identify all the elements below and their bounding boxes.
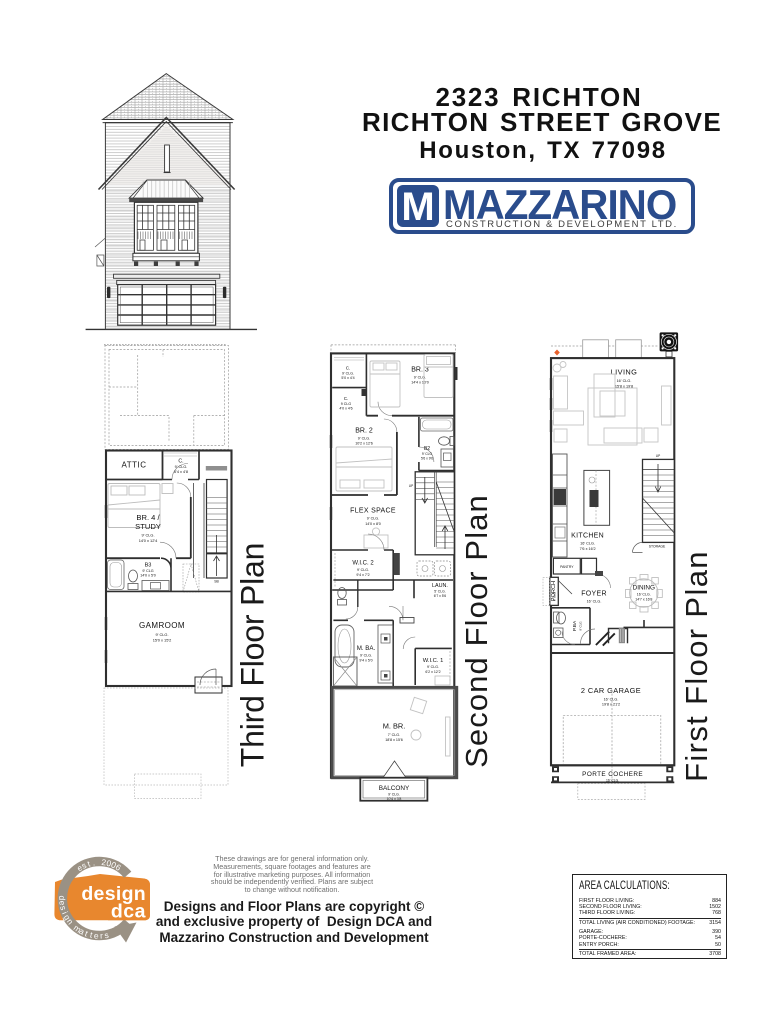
svg-text:5'0 x 4'4: 5'0 x 4'4 — [341, 376, 354, 380]
svg-text:9' CLG.: 9' CLG. — [360, 654, 372, 658]
svg-text:W.I.C. 1: W.I.C. 1 — [423, 658, 444, 664]
svg-text:KITCHEN: KITCHEN — [571, 533, 604, 540]
svg-text:5' CLG.: 5' CLG. — [434, 589, 445, 593]
svg-text:BALCONY: BALCONY — [379, 785, 410, 792]
svg-text:9' CLG.: 9' CLG. — [367, 517, 379, 521]
svg-text:DINING: DINING — [633, 585, 655, 592]
svg-text:14'0 x 12'4: 14'0 x 12'4 — [139, 538, 158, 543]
svg-text:9' CLG.: 9' CLG. — [141, 533, 154, 538]
svg-text:18'8 x 15'6: 18'8 x 15'6 — [385, 738, 403, 742]
svg-text:10'2 x 12'6: 10'2 x 12'6 — [355, 442, 373, 446]
svg-text:LAUN.: LAUN. — [432, 583, 448, 589]
svg-text:B3: B3 — [145, 563, 152, 569]
svg-text:C.: C. — [178, 459, 183, 465]
svg-text:7' CLG.: 7' CLG. — [388, 733, 400, 737]
svg-text:C.: C. — [344, 396, 349, 401]
svg-text:ATTIC: ATTIC — [121, 461, 146, 470]
svg-text:9'4 x 7'2: 9'4 x 7'2 — [356, 573, 369, 577]
svg-text:15'0 x 15'2: 15'0 x 15'2 — [153, 638, 172, 643]
svg-text:14'7 x 16'8: 14'7 x 16'8 — [635, 597, 652, 601]
svg-text:BR. 4 /: BR. 4 / — [136, 513, 160, 522]
svg-text:FOYER: FOYER — [581, 591, 607, 598]
svg-text:9' CLG.: 9' CLG. — [427, 665, 439, 669]
svg-text:C.: C. — [346, 366, 351, 371]
svg-text:6'4 x 4'8: 6'4 x 4'8 — [174, 470, 188, 474]
svg-text:16' CLG.: 16' CLG. — [604, 697, 619, 701]
svg-text:STORAGE: STORAGE — [649, 545, 666, 549]
svg-text:UP: UP — [409, 484, 413, 488]
svg-text:7'6 x 16'2: 7'6 x 16'2 — [580, 547, 596, 551]
svg-text:9' CLG: 9' CLG — [553, 591, 557, 601]
svg-text:6'7 x 5'6: 6'7 x 5'6 — [434, 594, 447, 598]
svg-text:9'4 x 5'0: 9'4 x 5'0 — [359, 659, 372, 663]
svg-text:19'8 x 21'2: 19'8 x 21'2 — [602, 703, 620, 707]
svg-text:16' CLG.: 16' CLG. — [580, 542, 595, 546]
svg-text:9' CLG: 9' CLG — [579, 621, 583, 631]
svg-text:16' CLG.: 16' CLG. — [606, 779, 619, 783]
svg-text:GAMROOM: GAMROOM — [139, 621, 185, 630]
svg-text:14'0 x 5'0: 14'0 x 5'0 — [140, 574, 156, 578]
svg-text:14'0 x 8'0: 14'0 x 8'0 — [365, 522, 381, 526]
svg-text:PORTE COCHERE: PORTE COCHERE — [582, 771, 643, 778]
svg-text:16' CLG.: 16' CLG. — [587, 600, 602, 604]
svg-text:W.I.C. 2: W.I.C. 2 — [352, 561, 374, 567]
svg-text:4'0 x 4'6: 4'0 x 4'6 — [339, 407, 352, 411]
svg-text:9' CLG.: 9' CLG. — [388, 793, 400, 797]
svg-text:FLEX SPACE: FLEX SPACE — [350, 508, 396, 515]
svg-text:M. BR.: M. BR. — [383, 722, 406, 731]
svg-text:SB: SB — [214, 580, 219, 584]
svg-text:BR. 3: BR. 3 — [411, 367, 429, 374]
svg-text:16' CLG.: 16' CLG. — [617, 379, 632, 383]
svg-text:9' CLG: 9' CLG — [142, 569, 153, 573]
svg-text:9' CLG.: 9' CLG. — [357, 568, 369, 572]
svg-text:STUDY: STUDY — [135, 522, 161, 531]
svg-text:10'4 x 3'8: 10'4 x 3'8 — [387, 797, 402, 801]
svg-text:P.BA: P.BA — [572, 620, 578, 631]
svg-text:9' CLG.: 9' CLG. — [358, 437, 370, 441]
svg-text:9' CLG.: 9' CLG. — [155, 632, 168, 637]
svg-text:6'2 x 12'2: 6'2 x 12'2 — [425, 670, 440, 674]
svg-text:14'4 x 10'0: 14'4 x 10'0 — [411, 381, 429, 385]
svg-text:2 CAR GARAGE: 2 CAR GARAGE — [581, 686, 641, 695]
svg-text:5'6 x 9'6: 5'6 x 9'6 — [421, 456, 433, 460]
svg-text:16' CLG.: 16' CLG. — [637, 593, 651, 597]
svg-text:M. BA.: M. BA. — [357, 645, 376, 652]
svg-text:9' CLG.: 9' CLG. — [175, 465, 188, 469]
svg-text:9 CLG: 9 CLG — [341, 402, 352, 406]
svg-text:9' CLG.: 9' CLG. — [342, 372, 354, 376]
svg-text:BR. 2: BR. 2 — [355, 428, 373, 435]
svg-text:UP: UP — [656, 454, 660, 458]
svg-text:PANTRY: PANTRY — [560, 565, 574, 569]
